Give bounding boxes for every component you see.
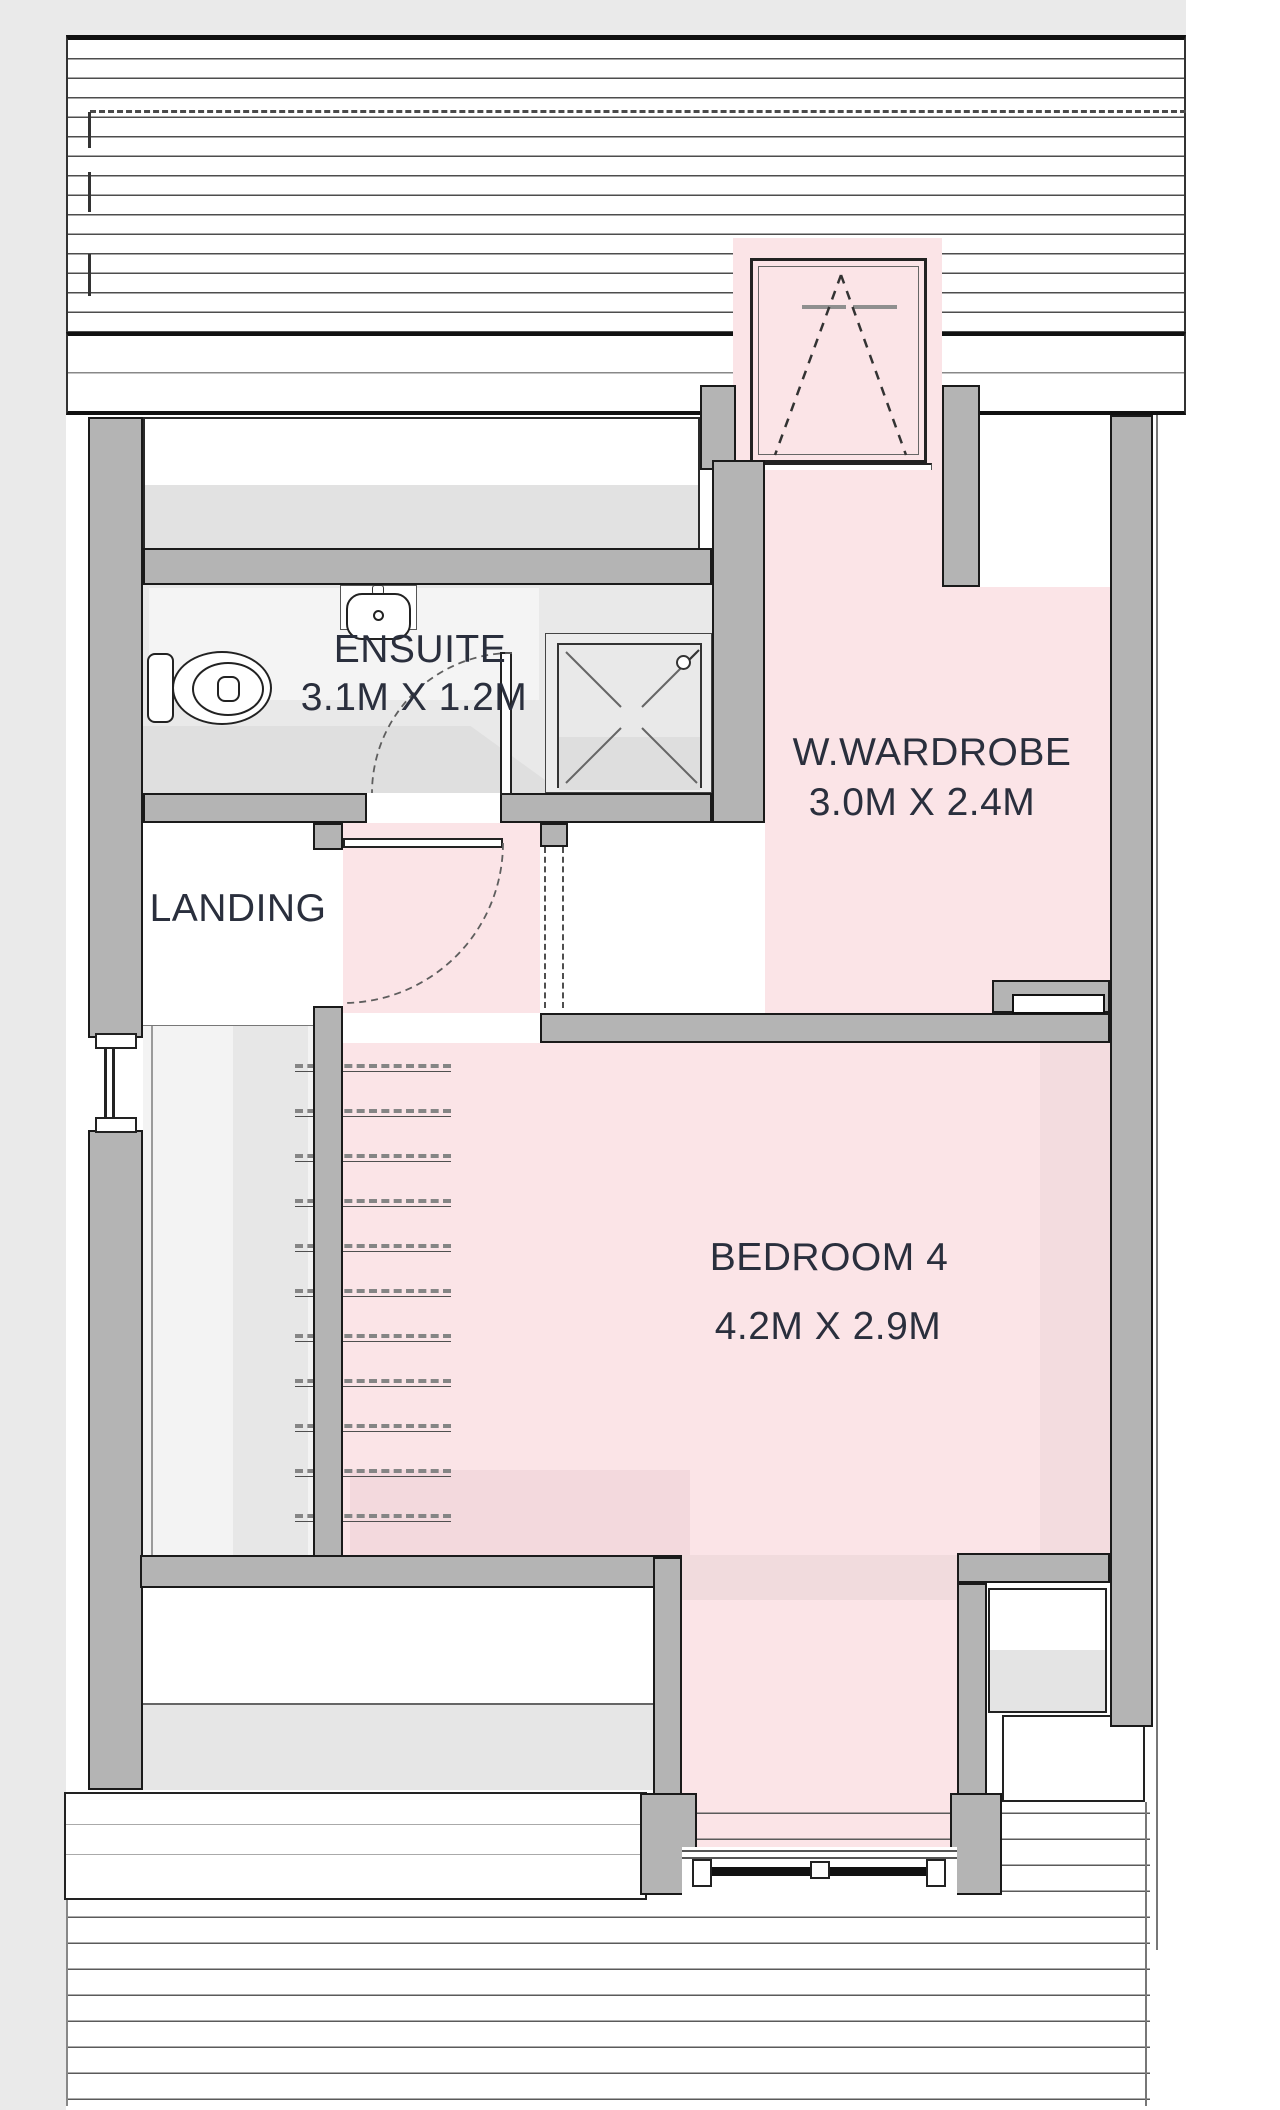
floor-shadow (350, 1470, 690, 1555)
eaves-strip-gray (143, 1705, 653, 1790)
label-bedroom4-dimensions: 4.2M X 2.9M (715, 1305, 942, 1349)
wall-wardrobe-bottom (540, 1013, 1110, 1043)
toilet-flush (217, 676, 240, 702)
roof-tick (88, 172, 91, 212)
wall-left-upper (88, 417, 143, 1038)
wall-plate-band-top (66, 332, 1186, 415)
wall-dormer-left (653, 1557, 682, 1800)
wall-under-stairs (140, 1555, 682, 1588)
wall-ensuite-bottom-left (143, 793, 367, 823)
stairs-icon (143, 1025, 313, 1557)
wall-dormer-right (957, 1583, 987, 1800)
floor-shadow (682, 1555, 957, 1600)
wall-right-outer-line (1156, 415, 1158, 1950)
page-margin-top (66, 0, 1186, 35)
sink-drain (373, 610, 384, 621)
roof-tick (88, 112, 91, 148)
floor-shadow (1040, 1043, 1110, 1555)
wall-plate-band-bottom-left (64, 1792, 647, 1900)
wall-under-bedroom-right (957, 1553, 1110, 1583)
shower-head-icon (676, 655, 691, 670)
dormer-window-sill (682, 1850, 957, 1852)
side-window-glazing (104, 1042, 107, 1126)
shower-icon (557, 643, 702, 788)
dashed-opening (544, 847, 546, 1008)
roof-ridge-dashed-line (90, 110, 1186, 113)
label-bedroom4-name: BEDROOM 4 (710, 1236, 949, 1280)
label-ensuite-name: ENSUITE (334, 628, 507, 672)
skylight-window-icon (750, 258, 927, 463)
roof-tick (88, 254, 91, 296)
wall-plate-band-bottom-right (1002, 1715, 1145, 1802)
label-wardrobe-name: W.WARDROBE (793, 731, 1072, 775)
eaves-strip (143, 1588, 653, 1705)
wall-ensuite-top (143, 548, 712, 585)
label-landing-name: LANDING (150, 887, 327, 931)
dashed-opening (562, 847, 564, 1008)
label-wardrobe-dimensions: 3.0M X 2.4M (809, 781, 1036, 825)
wall-right-outer (1110, 415, 1153, 1727)
wardrobe-notch-slot (1012, 994, 1105, 1014)
bedroom-door-swing-icon (338, 838, 510, 1010)
roof-hatch-edge (66, 1900, 68, 2106)
wall-bedroom-left (313, 1006, 343, 1557)
roof-hatch-top (66, 35, 1186, 332)
side-window-cap (95, 1117, 137, 1133)
side-window-cap (95, 1033, 137, 1049)
wall-stub-right-of-skylight (942, 385, 980, 587)
wall-left-lower (88, 1130, 143, 1790)
roof-hatch-edge (1145, 1802, 1147, 2106)
dormer-window-sill (682, 1857, 957, 1859)
wall-ensuite-bottom-right (500, 793, 712, 823)
wall-dormer-right-foot (950, 1793, 1002, 1895)
dormer-window-end (926, 1859, 946, 1887)
wall-opening-stub (540, 823, 568, 847)
dormer-window-end (692, 1859, 712, 1887)
dormer-window-mullion (810, 1861, 830, 1879)
wall-stub-left-of-skylight (700, 385, 736, 470)
eaves-void-bottom-right (988, 1588, 1107, 1713)
label-ensuite-dimensions: 3.1M X 1.2M (301, 676, 528, 720)
page-margin-left (0, 0, 66, 2110)
floor-plan: ENSUITE 3.1M X 1.2M LANDING W.WARDROBE 3… (0, 0, 1280, 2110)
wall-ensuite-right (712, 460, 765, 823)
side-window-glazing (112, 1042, 115, 1126)
eaves-void-above-ensuite (143, 417, 700, 548)
toilet-icon (147, 653, 174, 723)
